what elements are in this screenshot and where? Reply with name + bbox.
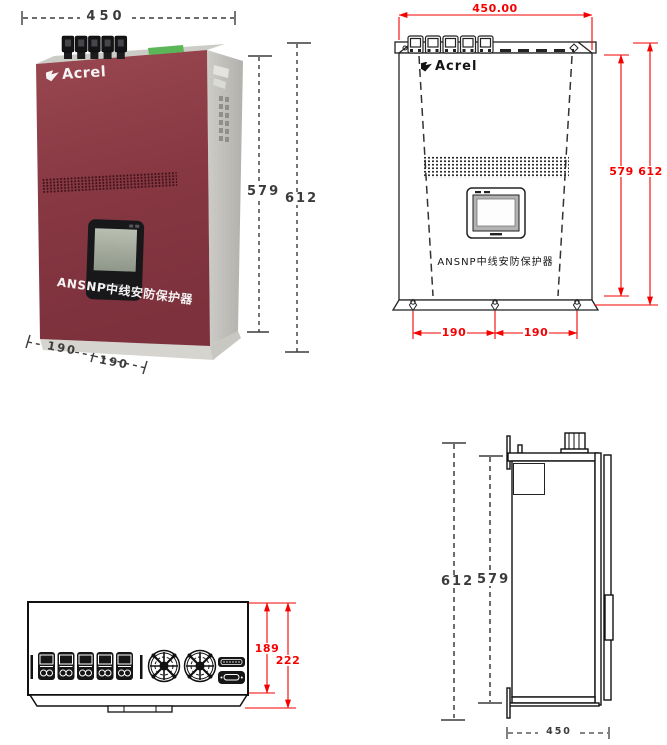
dim-height-front-label: 579: [476, 573, 506, 586]
vent-grid: [513, 463, 545, 495]
dim-height-front-label: 579: [246, 185, 275, 198]
brand-logo: Acrel: [421, 60, 477, 73]
dim-width-label: 450.00: [465, 3, 525, 14]
cooling-fan: [185, 651, 216, 682]
brand-text: Acrel: [435, 60, 477, 73]
cooling-fan: [149, 651, 180, 682]
dim-height-total-label: 612: [638, 166, 663, 177]
acrel-logo-icon: [46, 70, 60, 82]
terminal-posts: [62, 36, 127, 59]
dim-height-total-label: 612: [284, 192, 314, 205]
dim-height-total-label: 612: [440, 575, 470, 588]
side-panel: [207, 50, 243, 346]
view-product-photo: Acrel ANSNP中线安防保护器 450 579 612 190 190: [10, 8, 325, 380]
product-label: ANSNP中线安防保护器: [433, 258, 558, 268]
view-top-drawing: 189 222: [20, 596, 320, 726]
display-screen: [467, 188, 525, 238]
separator-bar: [31, 655, 34, 679]
brand-text: Acrel: [62, 65, 107, 82]
terminal-connectors: [38, 652, 133, 680]
separator-bar: [140, 655, 143, 679]
view-front-drawing: Acrel ANSNP中线安防保护器 450.00 579 612 190 19…: [388, 0, 667, 345]
dim-depth-total-label: 222: [275, 655, 301, 666]
dim-height-front-label: 579: [609, 166, 634, 177]
front-vent-dots: [423, 156, 569, 178]
dim-depth-body-label: 189: [254, 643, 280, 654]
vent-grid: [34, 607, 242, 643]
dim-width-label: 450: [538, 727, 580, 737]
dim-width-label: 450: [80, 10, 132, 23]
dim-hole-right-label: 190: [523, 327, 549, 338]
terminal-blocks: [408, 36, 493, 53]
brand-logo: Acrel: [46, 65, 107, 83]
acrel-logo-icon: [421, 62, 432, 72]
view-side-drawing: 612 579 450: [428, 425, 667, 745]
device-photo: [36, 36, 243, 360]
drawing-canvas: Acrel ANSNP中线安防保护器 450 579 612 190 190: [0, 0, 667, 745]
dim-hole-left-label: 190: [441, 327, 467, 338]
